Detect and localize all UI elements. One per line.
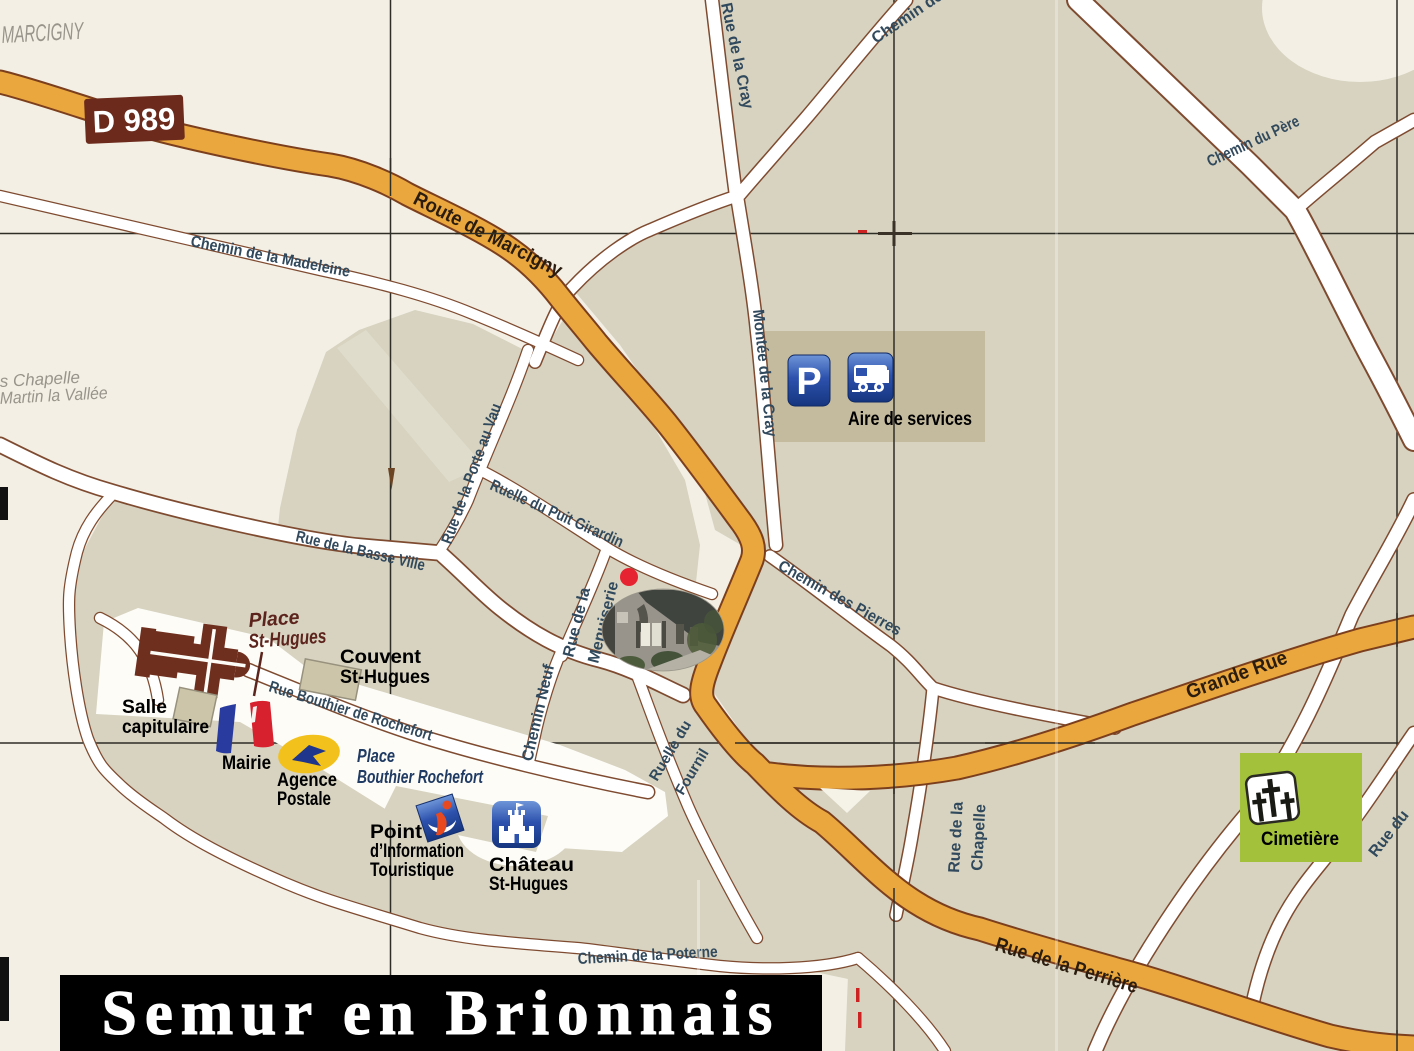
svg-text:P: P	[796, 361, 821, 403]
svg-text:Chapelle: Chapelle	[969, 804, 989, 872]
svg-text:Château: Château	[489, 855, 574, 876]
svg-text:Cimetière: Cimetière	[1261, 829, 1339, 850]
svg-text:d’Information: d’Information	[370, 841, 464, 862]
svg-text:capitulaire: capitulaire	[122, 717, 209, 738]
svg-text:Touristique: Touristique	[370, 860, 454, 881]
svg-text:MARCIGNY: MARCIGNY	[1, 18, 86, 49]
svg-text:Bouthier Rochefort: Bouthier Rochefort	[357, 767, 484, 787]
svg-text:Point: Point	[370, 822, 423, 843]
svg-text:Couvent: Couvent	[340, 647, 422, 668]
svg-text:Semur en Brionnais: Semur en Brionnais	[102, 978, 780, 1048]
svg-text:Mairie: Mairie	[222, 753, 271, 774]
svg-text:St-Hugues: St-Hugues	[489, 874, 568, 895]
svg-text:Salle: Salle	[122, 697, 167, 718]
svg-text:Postale: Postale	[277, 789, 331, 810]
svg-text:Place: Place	[357, 746, 395, 766]
svg-text:Aire de services: Aire de services	[848, 409, 972, 430]
svg-text:D 989: D 989	[92, 101, 176, 140]
svg-text:St-Hugues: St-Hugues	[340, 667, 430, 688]
svg-text:Agence: Agence	[277, 770, 337, 791]
